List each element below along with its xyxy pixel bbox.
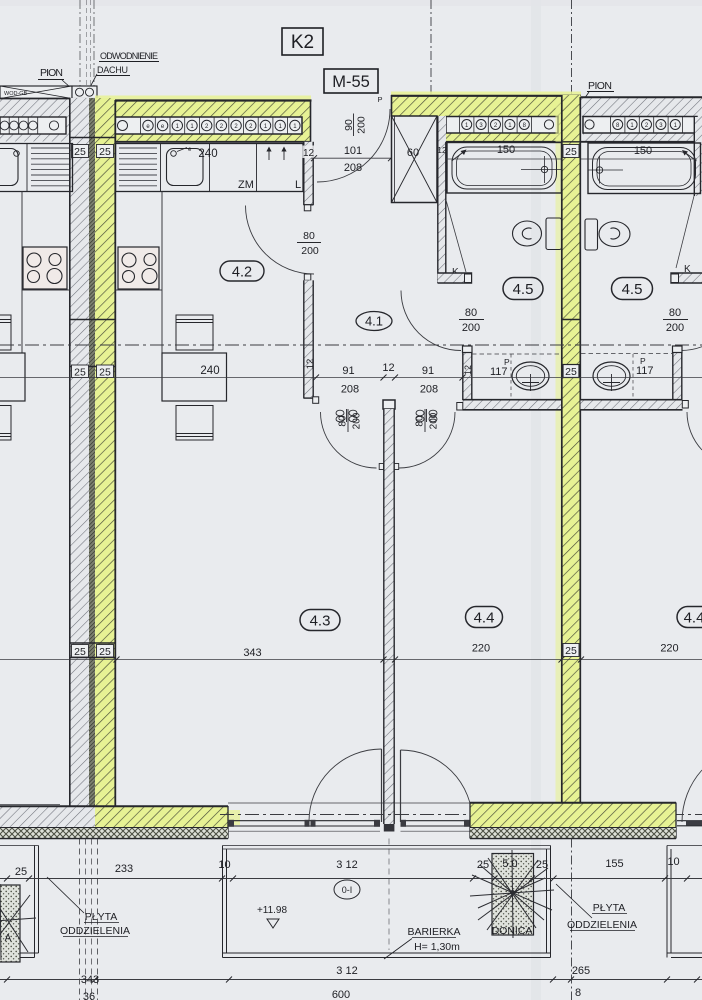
svg-text:80: 80 [303, 230, 315, 242]
svg-text:80: 80 [338, 415, 349, 427]
svg-text:PION: PION [588, 80, 612, 92]
svg-text:ZM: ZM [238, 179, 254, 191]
svg-text:600: 600 [332, 989, 350, 1000]
svg-text:25: 25 [99, 646, 111, 658]
svg-text:DACHU: DACHU [97, 65, 128, 75]
svg-text:25: 25 [74, 646, 86, 658]
svg-text:12: 12 [303, 148, 315, 159]
svg-text:117: 117 [490, 366, 508, 378]
svg-text:25: 25 [99, 367, 111, 379]
svg-text:25: 25 [477, 859, 489, 871]
svg-text:80: 80 [669, 307, 681, 319]
svg-text:ODDZIELENIA: ODDZIELENIA [567, 919, 637, 931]
svg-text:P: P [377, 95, 382, 104]
svg-text:A: A [5, 933, 12, 944]
svg-text:150: 150 [497, 144, 515, 156]
svg-text:3 12: 3 12 [336, 965, 357, 977]
svg-text:BARIERKA: BARIERKA [407, 926, 460, 938]
svg-text:10: 10 [218, 859, 230, 871]
svg-text:12: 12 [382, 362, 394, 374]
svg-text:80: 80 [465, 307, 477, 319]
svg-text:220: 220 [660, 643, 678, 655]
svg-text:ODDZIELENIA: ODDZIELENIA [60, 925, 130, 937]
svg-text:25: 25 [15, 866, 27, 878]
svg-text:12: 12 [437, 145, 447, 155]
svg-text:3 12: 3 12 [336, 859, 357, 871]
svg-text:101: 101 [344, 145, 362, 157]
svg-text:4.4: 4.4 [684, 610, 702, 627]
svg-text:K2: K2 [291, 32, 314, 53]
svg-text:208: 208 [341, 384, 359, 396]
svg-text:4.1: 4.1 [365, 314, 383, 329]
svg-text:60: 60 [407, 147, 419, 159]
svg-text:4.2: 4.2 [232, 265, 252, 281]
svg-text:233: 233 [115, 863, 133, 875]
svg-text:200: 200 [666, 322, 684, 334]
svg-text:8: 8 [575, 987, 581, 999]
svg-text:200: 200 [352, 412, 363, 429]
svg-text:220: 220 [472, 643, 490, 655]
svg-text:200: 200 [429, 412, 440, 429]
svg-text:4.3: 4.3 [310, 613, 331, 630]
svg-text:25: 25 [565, 146, 577, 158]
svg-text:PŁYTA: PŁYTA [593, 902, 625, 914]
svg-text:4.4: 4.4 [474, 610, 495, 627]
svg-text:10: 10 [667, 856, 679, 868]
svg-text:208: 208 [344, 162, 362, 174]
svg-text:H= 1,30m: H= 1,30m [414, 941, 460, 953]
svg-text:PŁYTA: PŁYTA [85, 911, 117, 923]
svg-text:M-55: M-55 [332, 73, 370, 91]
svg-text:12: 12 [463, 365, 473, 375]
svg-text:150: 150 [634, 145, 652, 157]
svg-text:L: L [295, 179, 301, 191]
svg-text:ODWODNIENIE: ODWODNIENIE [100, 51, 158, 61]
svg-text:155: 155 [605, 858, 623, 870]
svg-text:25: 25 [74, 146, 86, 158]
svg-text:80: 80 [415, 415, 426, 427]
svg-text:DONICA: DONICA [492, 925, 533, 937]
svg-text:25: 25 [536, 859, 548, 871]
svg-text:91: 91 [422, 365, 434, 377]
svg-text:25: 25 [565, 366, 577, 378]
svg-text:25: 25 [565, 645, 577, 657]
svg-text:PION: PION [40, 67, 63, 79]
svg-text:208: 208 [420, 384, 438, 396]
svg-text:265: 265 [572, 965, 590, 977]
svg-text:4.5: 4.5 [513, 281, 534, 298]
svg-text:12: 12 [305, 359, 316, 370]
svg-text:200: 200 [462, 322, 480, 334]
svg-text:117: 117 [636, 365, 654, 377]
svg-text:WOD-GB: WOD-GB [4, 91, 28, 97]
svg-text:200: 200 [356, 116, 368, 134]
svg-text:36: 36 [83, 991, 95, 1000]
svg-text:91: 91 [342, 365, 354, 377]
svg-text:200: 200 [301, 245, 319, 257]
svg-text:5.0: 5.0 [502, 858, 517, 870]
svg-text:240: 240 [198, 148, 217, 160]
svg-text:+11.98: +11.98 [257, 905, 288, 916]
svg-text:343: 343 [243, 647, 261, 659]
svg-text:4.5: 4.5 [622, 281, 643, 298]
svg-text:240: 240 [200, 365, 219, 377]
svg-text:25: 25 [74, 367, 86, 379]
svg-text:25: 25 [99, 146, 111, 158]
svg-text:343: 343 [81, 974, 99, 986]
svg-text:0-I: 0-I [342, 885, 353, 895]
